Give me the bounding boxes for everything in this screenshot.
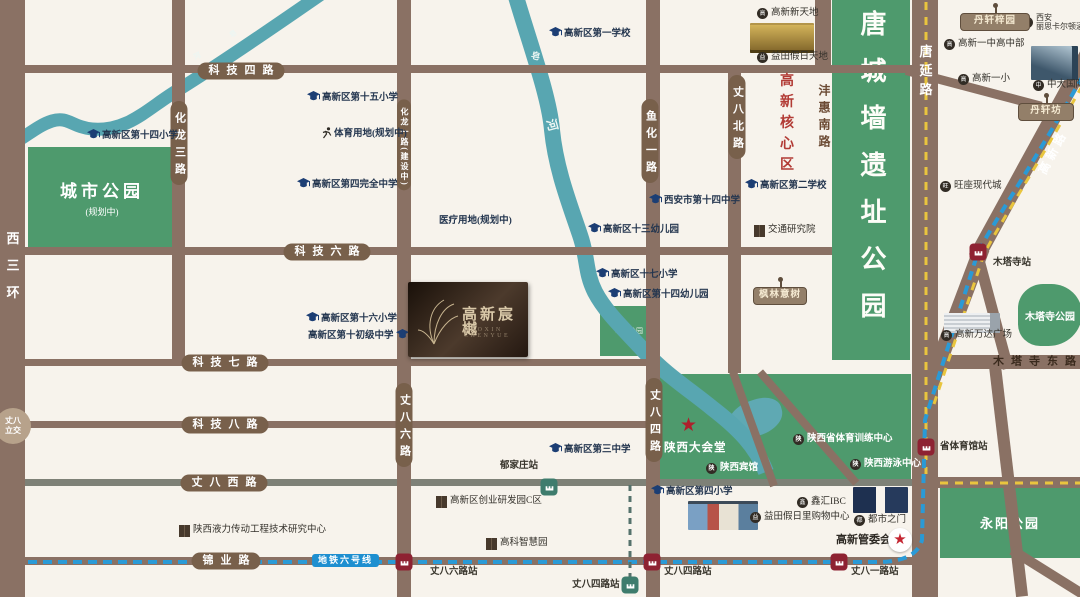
towers-building-image bbox=[853, 487, 908, 513]
school-label: 高新区第三中学 bbox=[564, 446, 631, 456]
school-label: 高新区第一学校 bbox=[564, 30, 631, 40]
metro-station-icon bbox=[970, 244, 987, 261]
school-poi: 高新区第一学校 bbox=[549, 27, 631, 42]
school-poi: 高新区第四完全中学 bbox=[297, 178, 398, 193]
residential-sign: 丹轩梓园 bbox=[960, 13, 1030, 31]
map-poi-building: 高新区创业研发园C区 bbox=[436, 496, 542, 508]
school-label: 高新区第十初级中学 bbox=[308, 332, 394, 342]
map-poi: 陕陕西省体育训练中心 bbox=[793, 434, 893, 445]
metro-station-icon bbox=[918, 439, 935, 456]
gold-building-image bbox=[750, 23, 814, 53]
road-label: 木塔寺东路 bbox=[993, 357, 1080, 368]
poi-label: 都市之门 bbox=[868, 516, 906, 526]
school-label: 医疗用地(规划中) bbox=[439, 217, 512, 227]
building-icon bbox=[436, 496, 447, 508]
school-poi: 高新区第二学校 bbox=[745, 179, 827, 194]
poi-dot-icon: 都 bbox=[854, 515, 865, 526]
poi-dot-icon: 高 bbox=[941, 330, 952, 341]
graduation-cap-icon bbox=[651, 485, 664, 496]
graduation-cap-icon bbox=[596, 268, 609, 279]
graduation-cap-icon bbox=[549, 443, 562, 454]
school-poi: 高新区十三幼儿园 bbox=[588, 223, 679, 238]
map-poi: 西西安丽思卡尔顿酒店 bbox=[1022, 14, 1080, 31]
graduation-cap-icon-wrap bbox=[396, 329, 409, 344]
graduation-cap-icon bbox=[87, 129, 100, 140]
metro-line6-label: 地铁六号线 bbox=[312, 554, 379, 567]
poi-label: 高新新天地 bbox=[771, 9, 819, 19]
poi-label: 陕西游泳中心 bbox=[864, 460, 921, 470]
poi-dot-icon: 高 bbox=[958, 74, 969, 85]
poi-dot-icon: 益 bbox=[750, 512, 761, 523]
poi-label: 高新一中高中部 bbox=[958, 40, 1025, 50]
graduation-cap-icon-wrap bbox=[297, 178, 310, 193]
metro-station-icon bbox=[543, 481, 555, 493]
road-label: 唐延路 bbox=[919, 45, 932, 102]
graduation-cap-icon bbox=[588, 223, 601, 234]
school-poi: 西安市第十四中学 bbox=[649, 194, 740, 209]
map-poi-building: 交通研究院 bbox=[754, 225, 816, 237]
school-label: 高新区十三幼儿园 bbox=[603, 226, 679, 236]
graduation-cap-icon bbox=[608, 288, 621, 299]
school-label: 高新区第十四幼儿园 bbox=[623, 291, 709, 301]
metro-station-icon bbox=[644, 554, 661, 571]
map-poi-building: 高科智慧园 bbox=[486, 538, 548, 550]
star-icon: ★ bbox=[680, 416, 697, 435]
residential-sign: 丹轩坊 bbox=[1018, 103, 1074, 121]
graduation-cap-icon-wrap bbox=[549, 27, 562, 42]
graduation-cap-icon-wrap bbox=[649, 194, 662, 209]
poi-label: 陕西液力传动工程技术研究中心 bbox=[193, 526, 326, 536]
graduation-cap-icon-wrap bbox=[549, 443, 562, 458]
poi-label: 交通研究院 bbox=[768, 226, 816, 236]
graduation-cap-icon-wrap bbox=[745, 179, 758, 194]
poi-label: 鑫汇IBC bbox=[811, 498, 846, 508]
metro-station-label: 木塔寺站 bbox=[993, 259, 1031, 269]
mall-building-image bbox=[688, 501, 758, 530]
residential-sign: 枫林意树 bbox=[753, 287, 807, 305]
star-icon: ★ bbox=[893, 533, 906, 548]
interchange-label-line2: 立交 bbox=[5, 426, 21, 436]
map-poi-building: 陕西液力传动工程技术研究中心 bbox=[179, 525, 326, 537]
road-label: 丈八六路 bbox=[396, 383, 413, 467]
admin-committee-star-badge: ★ bbox=[888, 528, 912, 552]
map-poi: 高高新一中高中部 bbox=[944, 39, 1025, 50]
location-map: 城市公园 (规划中) 唐城墙遗址公园 皂河公园 永阳公园 木塔寺公园 地铁六号线… bbox=[0, 0, 1080, 597]
metro-station-label: 丈八六路站 bbox=[430, 568, 478, 578]
poi-label: 陕西宾馆 bbox=[720, 464, 758, 474]
metro-station-icon bbox=[624, 579, 636, 591]
building-icon bbox=[179, 525, 190, 537]
poi-label: 高科智慧园 bbox=[500, 539, 548, 549]
poi-label-line: 丽思卡尔顿酒店 bbox=[1036, 23, 1080, 31]
poi-dot-icon: 陕 bbox=[706, 463, 717, 474]
school-label: 高新区第四小学 bbox=[666, 488, 733, 498]
poi-label: 陕西省体育训练中心 bbox=[807, 435, 893, 445]
road-label: 丈八西路 bbox=[181, 475, 268, 492]
poi-dot-icon: 高 bbox=[757, 8, 768, 19]
road-label: 丈八北路 bbox=[729, 75, 746, 159]
map-poi: 旺旺座现代城 bbox=[940, 181, 1002, 192]
admin-committee-label: 高新管委会 bbox=[836, 535, 891, 546]
poi-dot-icon: 高 bbox=[944, 39, 955, 50]
building-icon bbox=[486, 538, 497, 550]
school-poi: 高新区第四小学 bbox=[651, 485, 733, 500]
graduation-cap-icon-wrap bbox=[306, 312, 319, 327]
school-poi: 高新区第十四幼儿园 bbox=[608, 288, 709, 303]
poi-label: 高新万达广场 bbox=[955, 331, 1012, 341]
graduation-cap-icon-wrap bbox=[651, 485, 664, 500]
map-poi: 鑫鑫汇IBC bbox=[797, 497, 846, 508]
road-label: 高新核心区 bbox=[778, 73, 792, 178]
metro-station-label: 郁家庄站 bbox=[500, 462, 538, 472]
metro-station-icon bbox=[831, 554, 848, 571]
school-label: 高新区第四完全中学 bbox=[312, 181, 398, 191]
school-label: 高新区第十五小学 bbox=[322, 94, 398, 104]
road-label: 沣惠南路 bbox=[818, 84, 830, 152]
school-label: 高新区第十四小学 bbox=[102, 132, 178, 142]
poi-label: 益田假日里购物中心 bbox=[764, 513, 850, 523]
school-label: 高新区第十六小学 bbox=[321, 315, 397, 325]
school-label: 西安市第十四中学 bbox=[664, 197, 740, 207]
interchange-label-line1: 丈八 bbox=[5, 416, 21, 426]
runner-icon-wrap bbox=[322, 127, 332, 143]
school-poi: 高新区第十四小学 bbox=[87, 129, 178, 144]
graduation-cap-icon bbox=[297, 178, 310, 189]
graduation-cap-icon-wrap bbox=[596, 268, 609, 283]
great-hall-label: 陕西大会堂 bbox=[664, 443, 727, 455]
poi-label: 高新一小 bbox=[972, 75, 1010, 85]
road-label: 科技七路 bbox=[182, 355, 269, 372]
school-poi: 高新区第十六小学 bbox=[306, 312, 397, 327]
poi-dot-icon: 鑫 bbox=[797, 497, 808, 508]
graduation-cap-icon-wrap bbox=[87, 129, 100, 144]
poi-dot-icon: 陕 bbox=[850, 459, 861, 470]
metro-station-label: 丈八一路站 bbox=[851, 568, 899, 578]
metro-station-label: 省体育馆站 bbox=[940, 443, 988, 453]
road-label: 锦业路 bbox=[192, 553, 261, 570]
graduation-cap-icon bbox=[396, 329, 409, 340]
poi-label: 旺座现代城 bbox=[954, 182, 1002, 192]
ginkgo-leaf-icon bbox=[414, 292, 460, 348]
graduation-cap-icon bbox=[745, 179, 758, 190]
metro-station-icon bbox=[920, 441, 932, 453]
road-label: 科技八路 bbox=[182, 417, 269, 434]
metro-station-icon bbox=[541, 479, 558, 496]
map-poi: 高高新一小 bbox=[958, 74, 1010, 85]
map-poi: 中中大国际 bbox=[1033, 80, 1080, 91]
metro-station-label: 丈八四路站 bbox=[664, 568, 712, 578]
graduation-cap-icon-wrap bbox=[307, 91, 320, 106]
metro-station-icon bbox=[396, 554, 413, 571]
road-label: 化龙一路(建设中) bbox=[397, 99, 411, 190]
poi-label: 中大国际 bbox=[1047, 81, 1080, 91]
project-logo-card: 高新宸樾 GAOXIN CHENYUE bbox=[408, 282, 528, 357]
graduation-cap-icon-wrap bbox=[588, 223, 601, 238]
graduation-cap-icon bbox=[307, 91, 320, 102]
metro-station-icon bbox=[646, 556, 658, 568]
graduation-cap-icon bbox=[306, 312, 319, 323]
school-poi: 高新区第十五小学 bbox=[307, 91, 398, 106]
school-label: 体育用地(规划中) bbox=[334, 130, 407, 140]
poi-label-line: 西安 bbox=[1036, 14, 1080, 22]
map-poi: 益益田假日里购物中心 bbox=[750, 512, 850, 523]
graduation-cap-icon bbox=[649, 194, 662, 205]
glass-building-image bbox=[1031, 46, 1078, 80]
school-poi: 体育用地(规划中) bbox=[322, 127, 407, 143]
map-poi: 高高新新天地 bbox=[757, 8, 819, 19]
metro-station-icon bbox=[398, 556, 410, 568]
school-poi: 高新区十七小学 bbox=[596, 268, 678, 283]
school-label: 高新区第二学校 bbox=[760, 182, 827, 192]
road-label: 西三环 bbox=[6, 232, 19, 313]
project-name-pinyin: GAOXIN CHENYUE bbox=[464, 327, 528, 339]
map-poi: 益益田假日天地 bbox=[757, 52, 828, 63]
metro-station-icon bbox=[833, 556, 845, 568]
road-label: 鱼化一路 bbox=[642, 99, 659, 183]
poi-label: 益田假日天地 bbox=[771, 53, 828, 63]
map-poi: 陕陕西宾馆 bbox=[706, 463, 758, 474]
metro-station-icon bbox=[622, 577, 639, 594]
building-icon bbox=[754, 225, 765, 237]
metro-station-icon bbox=[972, 246, 984, 258]
poi-dot-icon: 益 bbox=[757, 52, 768, 63]
map-poi: 都都市之门 bbox=[854, 515, 906, 526]
map-poi: 高高新万达广场 bbox=[941, 330, 1012, 341]
poi-dot-icon: 中 bbox=[1033, 80, 1044, 91]
school-poi: 高新区第十初级中学 bbox=[308, 329, 409, 344]
graduation-cap-icon bbox=[549, 27, 562, 38]
poi-dot-icon: 旺 bbox=[940, 181, 951, 192]
school-label: 高新区十七小学 bbox=[611, 271, 678, 281]
school-poi: 高新区第三中学 bbox=[549, 443, 631, 458]
road-label: 科技四路 bbox=[198, 63, 285, 80]
road-label: 科技六路 bbox=[284, 244, 371, 261]
poi-label: 高新区创业研发园C区 bbox=[450, 497, 542, 507]
school-poi: 医疗用地(规划中) bbox=[437, 217, 512, 227]
graduation-cap-icon-wrap bbox=[608, 288, 621, 303]
map-poi: 陕陕西游泳中心 bbox=[850, 459, 921, 470]
road-label: 丈八四路 bbox=[646, 378, 663, 462]
runner-icon bbox=[322, 127, 332, 139]
metro-station-label: 丈八四路站 bbox=[572, 581, 620, 591]
poi-dot-icon: 陕 bbox=[793, 434, 804, 445]
